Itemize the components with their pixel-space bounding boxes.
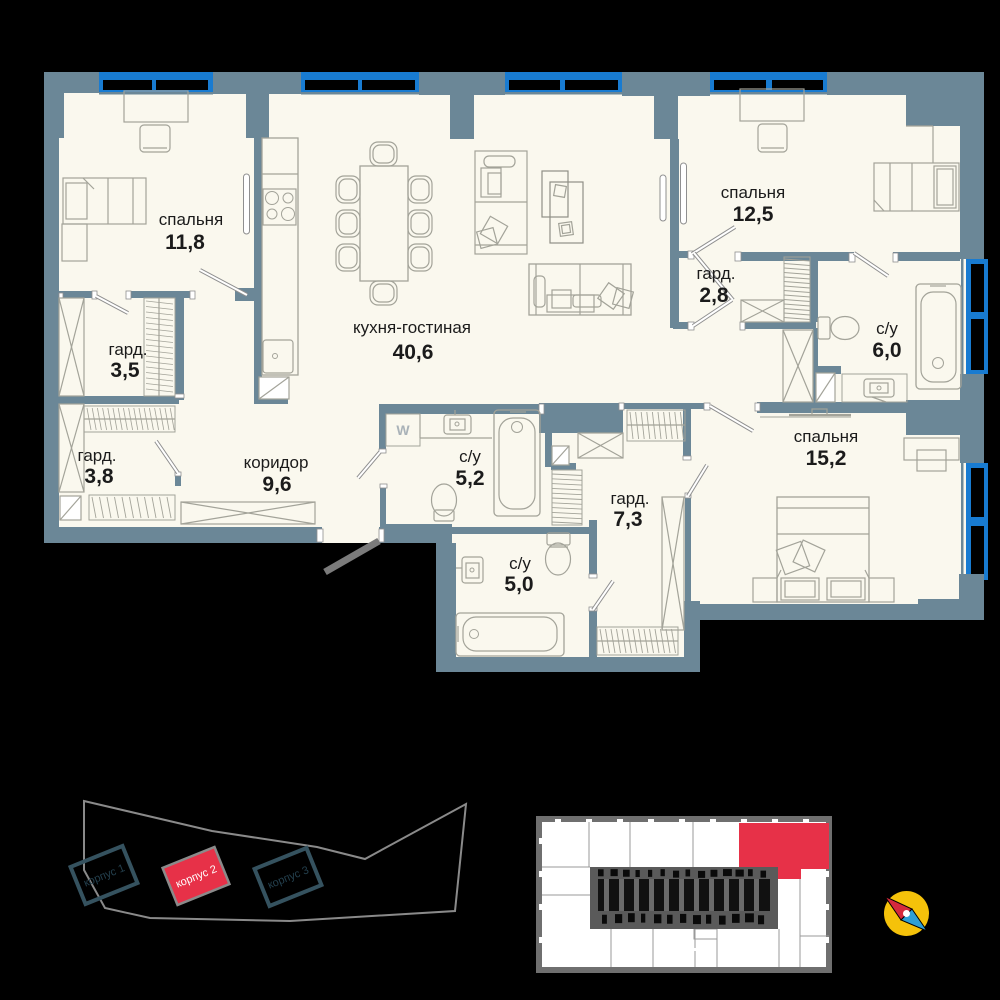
svg-text:11,8: 11,8 [165,231,205,254]
svg-text:40,6: 40,6 [393,341,434,364]
svg-text:спальня: спальня [721,183,786,202]
svg-text:12,5: 12,5 [733,203,774,226]
svg-text:9,6: 9,6 [262,473,291,496]
svg-text:W: W [396,422,410,438]
svg-text:гард.: гард. [611,489,650,508]
svg-text:гард.: гард. [697,264,736,283]
svg-text:5,0: 5,0 [504,573,533,596]
svg-text:гард.: гард. [109,340,148,359]
svg-text:5,2: 5,2 [455,467,484,490]
svg-text:7,3: 7,3 [613,508,642,531]
svg-text:3,8: 3,8 [84,465,114,488]
svg-text:коридор: коридор [244,453,309,472]
svg-text:гард.: гард. [78,446,117,465]
svg-text:с/у: с/у [459,447,481,466]
svg-text:6,0: 6,0 [872,339,901,362]
svg-text:кухня-гостиная: кухня-гостиная [353,318,471,337]
svg-text:3,5: 3,5 [110,359,140,382]
svg-text:с/у: с/у [876,319,898,338]
svg-text:15,2: 15,2 [806,447,847,470]
svg-text:спальня: спальня [159,210,224,229]
svg-text:с/у: с/у [509,554,531,573]
svg-text:спальня: спальня [794,427,859,446]
svg-text:2,8: 2,8 [699,284,729,307]
